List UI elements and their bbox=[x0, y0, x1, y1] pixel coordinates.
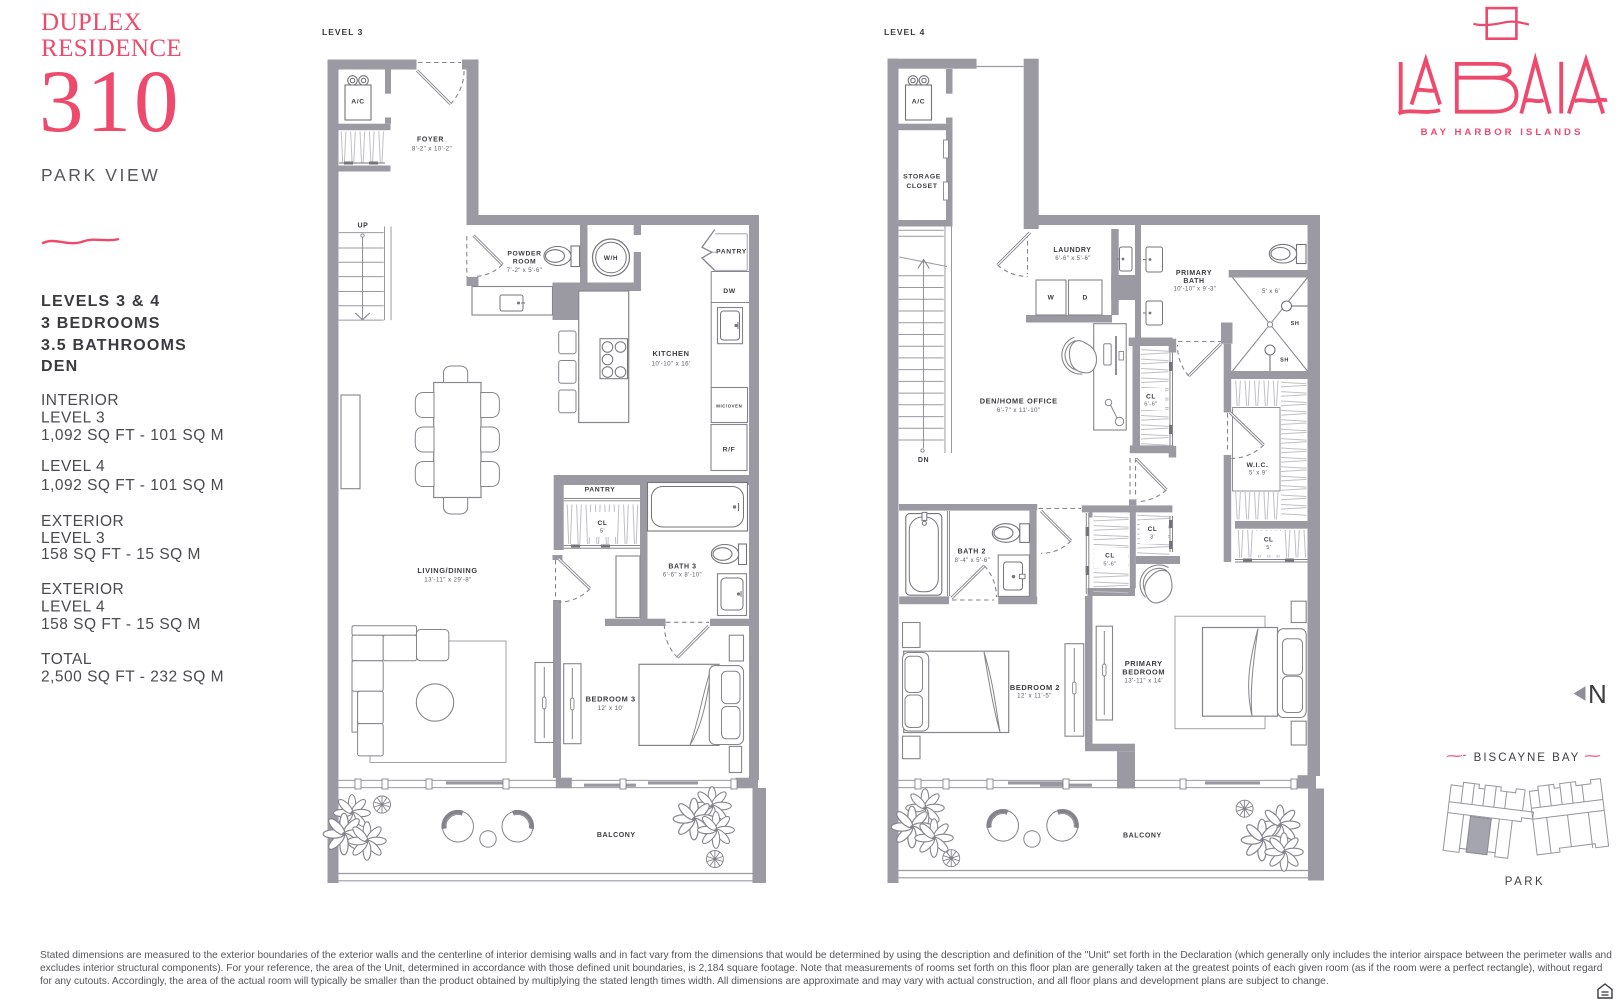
svg-text:UP: UP bbox=[358, 223, 369, 230]
svg-text:310: 310 bbox=[39, 53, 182, 151]
svg-text:LEVEL 3: LEVEL 3 bbox=[322, 27, 363, 37]
svg-text:3 BEDROOMS: 3 BEDROOMS bbox=[41, 315, 161, 332]
svg-text:W/H: W/H bbox=[604, 255, 618, 262]
svg-text:5': 5' bbox=[600, 529, 605, 535]
svg-text:CL: CL bbox=[1148, 526, 1158, 533]
svg-text:SH: SH bbox=[1280, 358, 1289, 364]
svg-text:MIC/OVEN: MIC/OVEN bbox=[716, 404, 742, 409]
svg-text:5': 5' bbox=[1266, 545, 1271, 551]
svg-text:R/F: R/F bbox=[723, 447, 736, 454]
svg-text:PANTRY: PANTRY bbox=[716, 249, 747, 256]
svg-text:8'-4" x 5'-6": 8'-4" x 5'-6" bbox=[955, 558, 990, 564]
svg-text:KITCHEN: KITCHEN bbox=[652, 349, 689, 358]
svg-text:STORAGE: STORAGE bbox=[903, 174, 941, 181]
svg-text:6'-6": 6'-6" bbox=[1144, 402, 1158, 408]
svg-text:5' x 9': 5' x 9' bbox=[1249, 471, 1267, 477]
svg-text:DUPLEX: DUPLEX bbox=[41, 9, 142, 36]
svg-text:12' x 10': 12' x 10' bbox=[598, 705, 624, 712]
svg-text:W: W bbox=[1048, 295, 1055, 302]
svg-text:LEVEL 4: LEVEL 4 bbox=[884, 27, 925, 37]
svg-text:for any cutouts. Accordingly,: for any cutouts. Accordingly, the area o… bbox=[40, 976, 1329, 987]
svg-text:3.5 BATHROOMS: 3.5 BATHROOMS bbox=[41, 337, 187, 354]
svg-text:W.I.C.: W.I.C. bbox=[1246, 462, 1268, 469]
svg-text:CL: CL bbox=[1146, 394, 1156, 401]
svg-text:LAUNDRY: LAUNDRY bbox=[1053, 247, 1091, 254]
svg-text:PARK: PARK bbox=[1505, 876, 1545, 888]
svg-text:DN: DN bbox=[918, 457, 929, 464]
svg-text:BALCONY: BALCONY bbox=[597, 832, 636, 839]
svg-text:7'-2" x 5'-6": 7'-2" x 5'-6" bbox=[507, 268, 542, 274]
svg-text:6'-6" x 8'-10": 6'-6" x 8'-10" bbox=[663, 573, 702, 579]
svg-text:158 SQ FT - 15 SQ M: 158 SQ FT - 15 SQ M bbox=[41, 616, 201, 633]
svg-text:LIVING/DINING: LIVING/DINING bbox=[417, 566, 477, 575]
svg-text:CL: CL bbox=[598, 520, 608, 527]
svg-text:PANTRY: PANTRY bbox=[585, 487, 616, 494]
svg-text:BAY HARBOR ISLANDS: BAY HARBOR ISLANDS bbox=[1421, 127, 1584, 138]
svg-text:158 SQ FT - 15 SQ M: 158 SQ FT - 15 SQ M bbox=[41, 546, 201, 563]
svg-text:POWDER: POWDER bbox=[507, 251, 541, 258]
svg-text:Stated dimensions are measured: Stated dimensions are measured to the ex… bbox=[40, 950, 1612, 961]
svg-text:BEDROOM 2: BEDROOM 2 bbox=[1010, 683, 1060, 692]
svg-text:LEVELS 3 & 4: LEVELS 3 & 4 bbox=[41, 293, 160, 310]
svg-text:TOTAL: TOTAL bbox=[41, 651, 92, 668]
svg-text:LEVEL 4: LEVEL 4 bbox=[41, 458, 105, 475]
svg-text:BATH: BATH bbox=[1183, 278, 1204, 285]
svg-text:A/C: A/C bbox=[351, 99, 365, 106]
svg-text:excludes interior structural c: excludes interior structural components)… bbox=[40, 963, 1603, 974]
svg-text:13'-11" x 14': 13'-11" x 14' bbox=[1124, 678, 1163, 685]
svg-text:D: D bbox=[1083, 295, 1088, 302]
svg-text:PRIMARY: PRIMARY bbox=[1176, 270, 1212, 277]
svg-text:2,500 SQ FT - 232 SQ M: 2,500 SQ FT - 232 SQ M bbox=[41, 669, 224, 686]
svg-text:ROOM: ROOM bbox=[513, 259, 537, 266]
svg-text:3': 3' bbox=[1150, 535, 1155, 541]
svg-text:12' x 11'-5": 12' x 11'-5" bbox=[1017, 693, 1052, 700]
svg-text:LEVEL 4: LEVEL 4 bbox=[41, 599, 105, 616]
svg-text:6'-6" x 5'-6": 6'-6" x 5'-6" bbox=[1055, 256, 1090, 262]
svg-text:EXTERIOR: EXTERIOR bbox=[41, 581, 124, 598]
svg-text:PARK VIEW: PARK VIEW bbox=[41, 165, 160, 185]
svg-text:INTERIOR: INTERIOR bbox=[41, 392, 119, 409]
svg-text:EXTERIOR: EXTERIOR bbox=[41, 513, 124, 530]
svg-text:BEDROOM 3: BEDROOM 3 bbox=[586, 695, 636, 704]
svg-text:6'-7" x 11'-10": 6'-7" x 11'-10" bbox=[997, 407, 1041, 414]
svg-text:1,092 SQ FT - 101 SQ M: 1,092 SQ FT - 101 SQ M bbox=[41, 477, 224, 494]
svg-text:8'-2" x 10'-2": 8'-2" x 10'-2" bbox=[412, 146, 452, 153]
svg-text:A/C: A/C bbox=[912, 99, 926, 106]
svg-text:BALCONY: BALCONY bbox=[1123, 833, 1162, 840]
svg-text:CLOSET: CLOSET bbox=[906, 183, 937, 190]
svg-text:SH: SH bbox=[1291, 321, 1300, 327]
svg-text:LEVEL 3: LEVEL 3 bbox=[41, 410, 105, 427]
svg-text:DEN: DEN bbox=[41, 358, 78, 375]
svg-text:FOYER: FOYER bbox=[417, 137, 444, 144]
svg-text:5'-6": 5'-6" bbox=[1103, 562, 1116, 568]
svg-text:DW: DW bbox=[723, 288, 736, 295]
svg-text:13'-11" x 29'-8": 13'-11" x 29'-8" bbox=[424, 577, 471, 584]
svg-text:N: N bbox=[1588, 679, 1607, 709]
svg-text:5' x 6': 5' x 6' bbox=[1262, 289, 1280, 295]
svg-text:CL: CL bbox=[1264, 537, 1274, 544]
svg-text:1,092 SQ FT - 101 SQ M: 1,092 SQ FT - 101 SQ M bbox=[41, 427, 224, 444]
svg-text:10'-10" x 9'-3": 10'-10" x 9'-3" bbox=[1174, 287, 1217, 293]
svg-text:BISCAYNE BAY: BISCAYNE BAY bbox=[1474, 752, 1581, 764]
svg-text:BATH 2: BATH 2 bbox=[958, 549, 986, 556]
svg-text:DEN/HOME OFFICE: DEN/HOME OFFICE bbox=[980, 397, 1058, 406]
svg-text:BATH 3: BATH 3 bbox=[668, 564, 696, 571]
svg-text:LEVEL 3: LEVEL 3 bbox=[41, 530, 105, 547]
svg-text:10'-10" x 16': 10'-10" x 16' bbox=[652, 361, 691, 368]
svg-text:CL: CL bbox=[1105, 553, 1115, 560]
svg-text:BEDROOM: BEDROOM bbox=[1122, 668, 1165, 677]
